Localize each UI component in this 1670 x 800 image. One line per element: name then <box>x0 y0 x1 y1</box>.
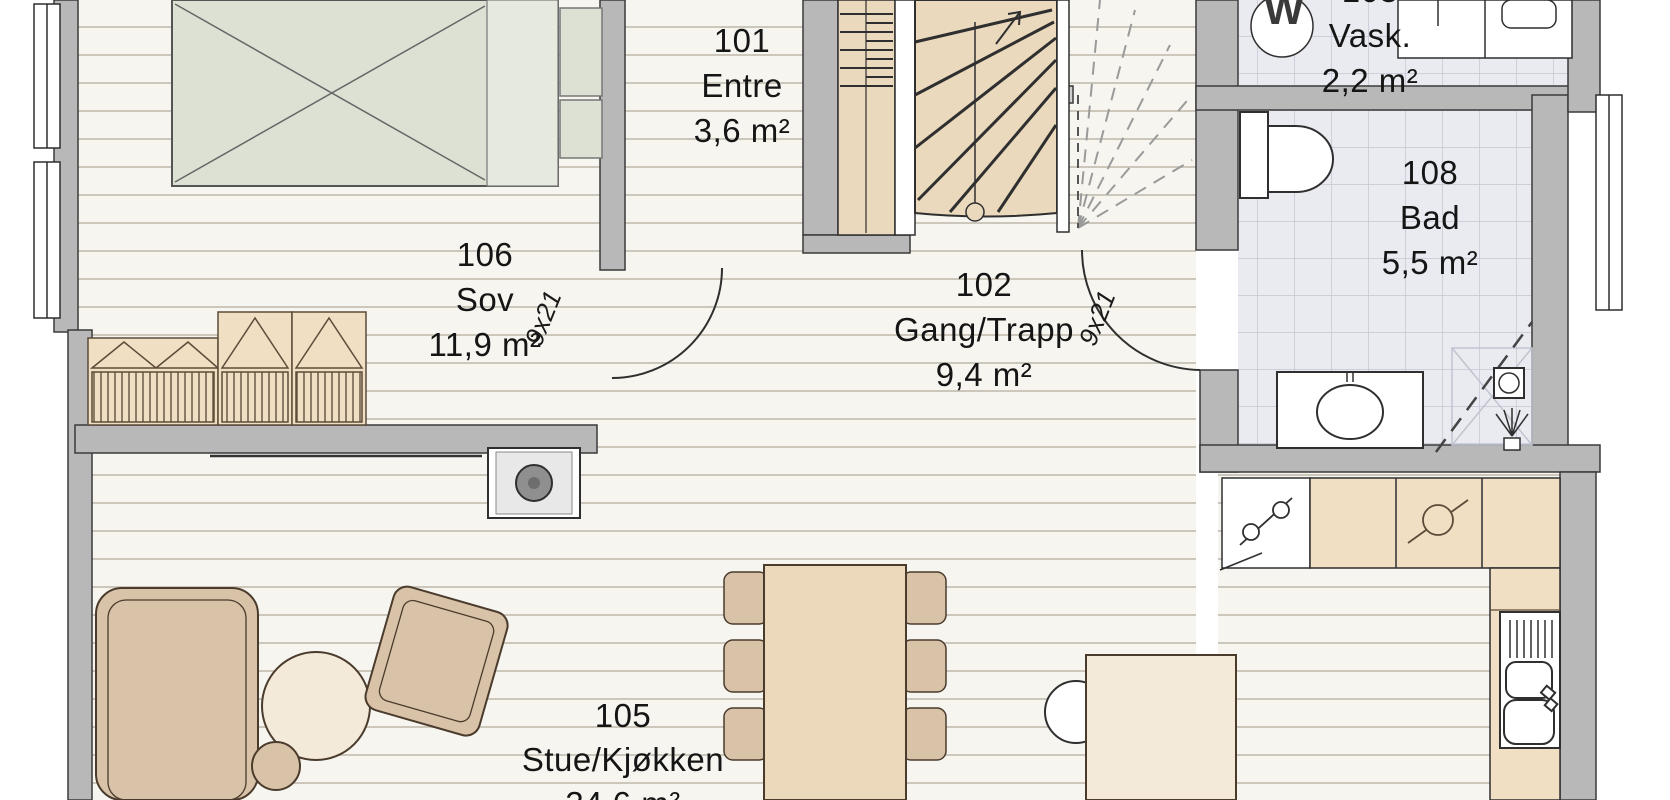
room-name: Bad <box>1270 195 1590 240</box>
bed <box>172 0 602 186</box>
room-number: 106 <box>325 232 645 277</box>
sofa <box>96 588 258 800</box>
room-area: 34,6 m² <box>463 782 783 800</box>
room-number: 108 <box>1270 150 1590 195</box>
room-label-sov: 106 Sov 11,9 m² <box>325 232 645 367</box>
room-number: 105 <box>463 694 783 738</box>
kitchen-sink-icon <box>1500 612 1560 748</box>
room-area: 11,9 m² <box>325 322 645 367</box>
room-label-bad: 108 Bad 5,5 m² <box>1270 150 1590 285</box>
room-area: 2,2 m² <box>1210 58 1530 103</box>
room-name: Sov <box>325 277 645 322</box>
room-name: Stue/Kjøkken <box>463 738 783 782</box>
room-area: 5,5 m² <box>1270 240 1590 285</box>
room-label-entre: 101 Entre 3,6 m² <box>582 18 902 153</box>
room-area: 3,6 m² <box>582 108 902 153</box>
washer-label: W <box>1249 0 1319 34</box>
room-name: Entre <box>582 63 902 108</box>
room-number: 101 <box>582 18 902 63</box>
room-label-stue: 105 Stue/Kjøkken 34,6 m² <box>463 694 783 800</box>
vanity-sink-icon <box>1277 372 1423 448</box>
floor-plan: 101 Entre 3,6 m² 106 Sov 11,9 m² 102 Gan… <box>0 0 1670 800</box>
